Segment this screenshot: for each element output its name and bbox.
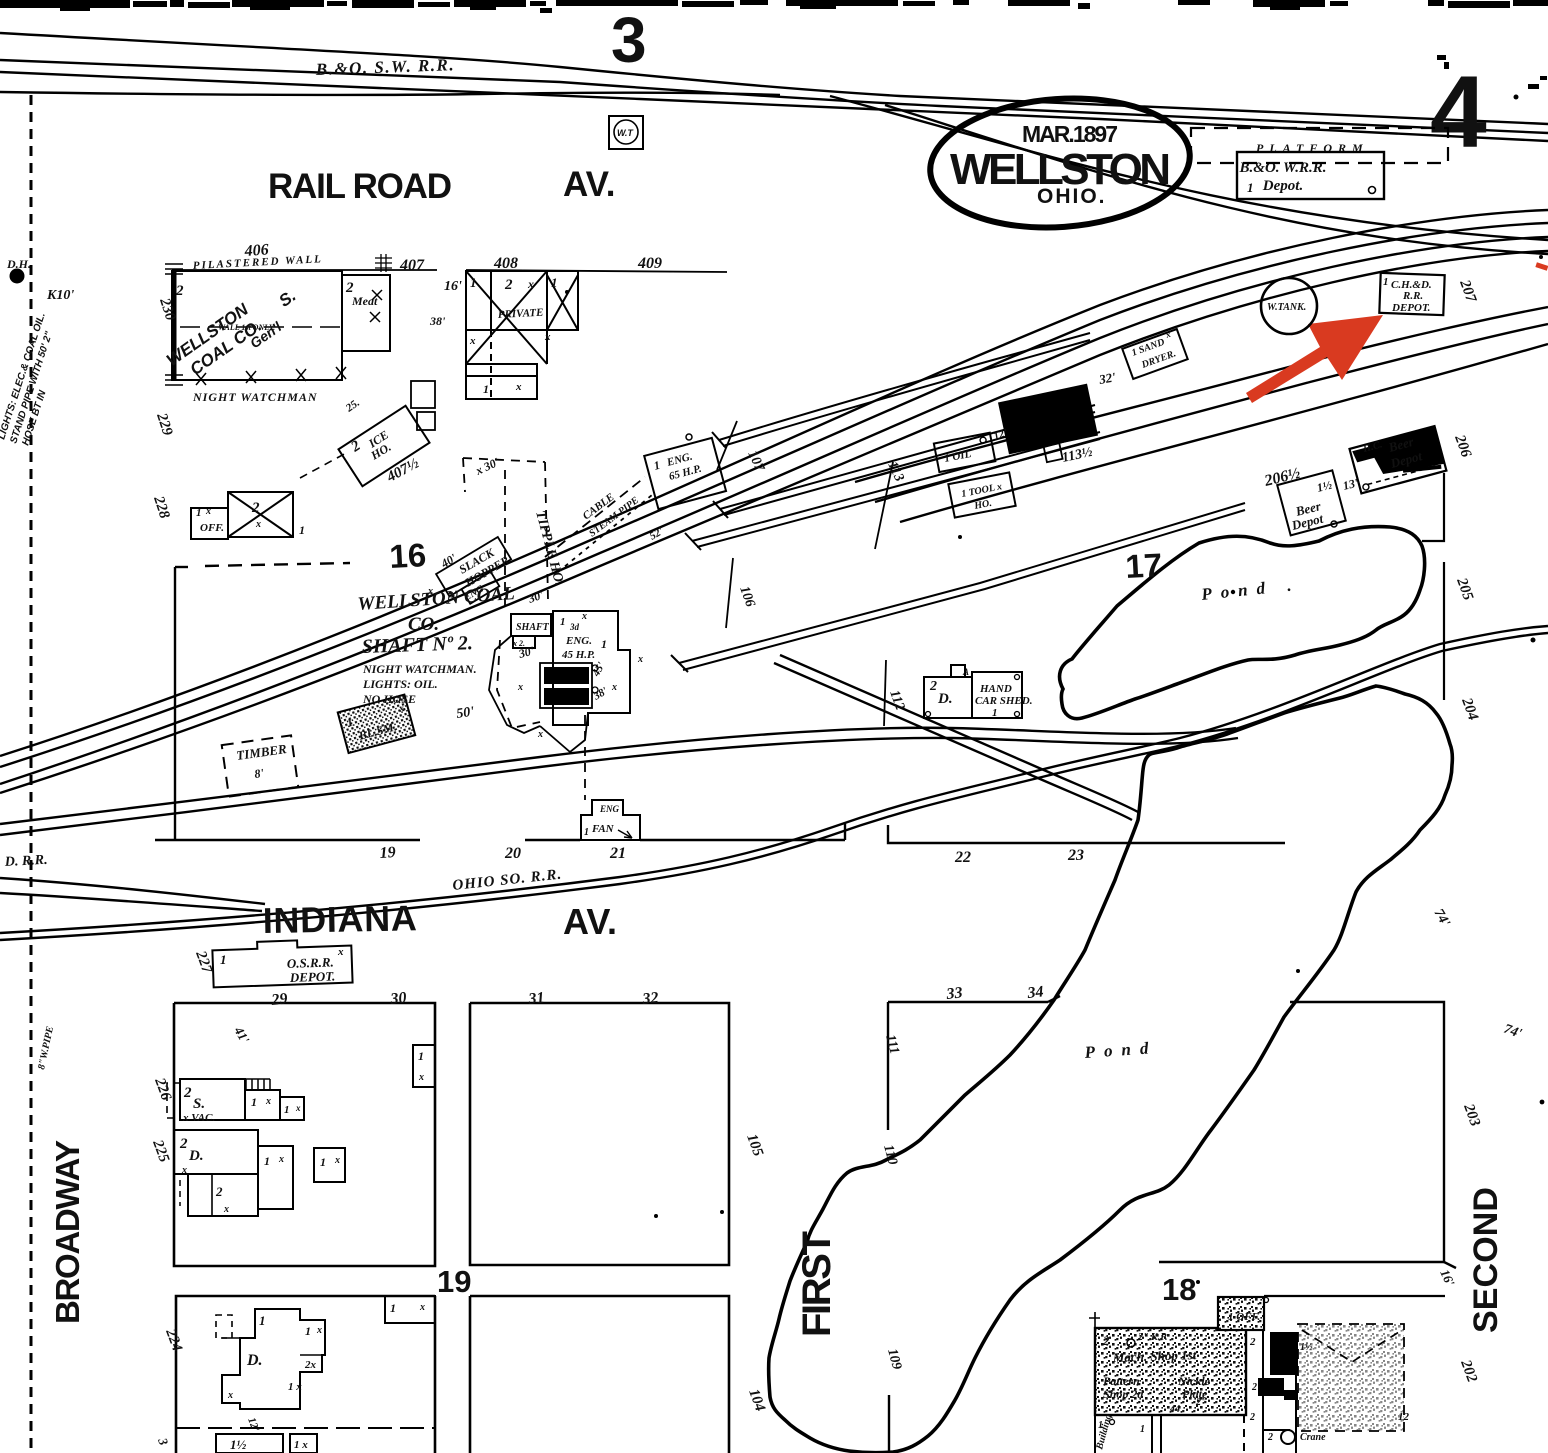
svg-text:50': 50' [455, 705, 475, 722]
svg-text:x: x [227, 1390, 233, 1401]
svg-text:Crane: Crane [1300, 1432, 1326, 1443]
svg-text:44: 44 [1169, 1404, 1180, 1415]
svg-text:S.: S. [193, 1096, 205, 1112]
svg-text:x: x [316, 1325, 322, 1336]
svg-text:RAIL ROAD: RAIL ROAD [268, 167, 454, 206]
svg-text:18: 18 [1162, 1272, 1196, 1307]
svg-text:D.: D. [246, 1352, 263, 1369]
svg-text:33: 33 [945, 984, 964, 1003]
svg-text:22: 22 [954, 849, 971, 866]
svg-text:x: x [255, 519, 261, 530]
svg-text:1½: 1½ [230, 1437, 247, 1452]
svg-text:1: 1 [584, 827, 589, 838]
svg-text:1 x: 1 x [288, 1381, 302, 1393]
svg-text:1: 1 [1140, 1424, 1145, 1435]
svg-text:INDIANA: INDIANA [262, 897, 419, 941]
svg-text:D.: D. [937, 691, 953, 707]
svg-text:1 x: 1 x [294, 1439, 308, 1451]
svg-text:Meat: Meat [351, 294, 378, 308]
svg-text:AV.: AV. [563, 901, 617, 942]
svg-text:x: x [265, 1096, 271, 1107]
svg-text:4: 4 [1430, 55, 1487, 169]
svg-text:Pattern: Pattern [1103, 1374, 1140, 1388]
svg-text:PRIVATE: PRIVATE [498, 307, 544, 321]
svg-text:W.T: W.T [617, 128, 634, 138]
svg-text:Mach. Shop 1st: Mach. Shop 1st [1112, 1347, 1197, 1365]
svg-text:CO.: CO. [408, 614, 439, 635]
svg-text:x 2.: x 2. [512, 639, 525, 648]
svg-text:x: x [418, 1072, 424, 1083]
svg-text:CAR SHED.: CAR SHED. [975, 695, 1032, 707]
svg-text:x: x [515, 381, 522, 393]
svg-text:W.TANK.: W.TANK. [1267, 302, 1306, 313]
svg-text:2x: 2x [304, 1359, 317, 1371]
svg-text:x: x [517, 682, 523, 693]
svg-text:1: 1 [264, 1154, 270, 1168]
svg-text:Depot.: Depot. [1262, 178, 1303, 194]
svg-text:29: 29 [270, 990, 289, 1009]
svg-text:19: 19 [379, 844, 396, 862]
svg-text:20: 20 [504, 845, 521, 862]
svg-text:1: 1 [220, 952, 227, 967]
svg-text:2: 2 [183, 1085, 192, 1101]
svg-text:31: 31 [527, 989, 546, 1008]
svg-text:3: 3 [611, 4, 647, 76]
svg-text:1 OFF.: 1 OFF. [1228, 1311, 1260, 1323]
svg-text:2: 2 [1249, 1336, 1256, 1348]
svg-text:x: x [278, 1154, 284, 1165]
svg-text:x: x [544, 331, 551, 343]
svg-text:ENG: ENG [599, 804, 620, 814]
svg-text:BROADWAY: BROADWAY [49, 1138, 86, 1324]
svg-text:2: 2 [179, 1136, 188, 1152]
svg-text:2: 2 [1267, 1432, 1273, 1443]
svg-text:1: 1 [305, 1324, 311, 1338]
svg-text:NIGHT WATCHMAN: NIGHT WATCHMAN [192, 390, 318, 404]
svg-text:x: x [469, 335, 476, 347]
svg-text:2: 2 [1249, 1412, 1255, 1423]
svg-text:x: x [637, 654, 643, 665]
svg-text:409: 409 [637, 255, 662, 272]
svg-text:1: 1 [601, 637, 607, 651]
svg-text:HAND: HAND [979, 683, 1012, 695]
svg-text:SHAFT Nº 2.: SHAFT Nº 2. [361, 632, 473, 658]
svg-text:21: 21 [609, 845, 626, 862]
svg-text:1: 1 [992, 707, 998, 719]
svg-text:D. R.R.: D. R.R. [3, 853, 48, 870]
svg-text:OHIO.: OHIO. [1037, 185, 1107, 208]
svg-text:x: x [295, 1103, 301, 1113]
svg-text:407: 407 [399, 257, 425, 274]
svg-text:30: 30 [389, 989, 408, 1008]
svg-text:2: 2 [1102, 1333, 1110, 1348]
svg-text:408: 408 [493, 255, 518, 272]
svg-text:AV.: AV. [563, 165, 616, 204]
svg-text:x: x [581, 611, 587, 622]
svg-text:DEPOT.: DEPOT. [289, 968, 336, 985]
svg-text:2: 2 [1251, 1382, 1257, 1393]
svg-text:32': 32' [1097, 369, 1117, 387]
svg-text:Shop 2d: Shop 2d [1103, 1387, 1144, 1401]
svg-text:MAR.1897: MAR.1897 [1022, 121, 1118, 147]
svg-text:1: 1 [196, 507, 202, 519]
svg-text:38': 38' [429, 314, 446, 328]
svg-text:2: 2 [504, 277, 513, 293]
svg-text:x: x [537, 729, 543, 740]
svg-text:OFF.: OFF. [200, 522, 224, 534]
svg-text:D.: D. [188, 1148, 204, 1164]
svg-text:FAN: FAN [591, 823, 615, 835]
svg-text:1: 1 [299, 523, 305, 537]
svg-text:19: 19 [437, 1264, 471, 1299]
svg-text:16': 16' [444, 279, 462, 294]
svg-text:DEPOT.: DEPOT. [1391, 302, 1430, 314]
svg-text:45 H.P.: 45 H.P. [561, 649, 595, 661]
svg-text:2: 2 [215, 1184, 223, 1199]
svg-text:D.H.: D.H. [6, 257, 31, 271]
svg-text:LIGHTS: OIL.: LIGHTS: OIL. [362, 677, 438, 691]
svg-text:2" K.P.: 2" K.P. [1137, 1332, 1168, 1343]
svg-text:16: 16 [388, 536, 427, 575]
svg-text:x: x [419, 1302, 425, 1313]
svg-text:1: 1 [1247, 180, 1254, 195]
svg-text:1: 1 [1383, 276, 1389, 288]
svg-text:x VAC.: x VAC. [182, 1112, 215, 1124]
svg-text:x: x [181, 1165, 187, 1176]
svg-text:x: x [527, 277, 534, 291]
svg-text:12: 12 [1398, 1411, 1410, 1423]
svg-text:1: 1 [251, 1095, 257, 1109]
svg-text:1: 1 [320, 1155, 326, 1169]
svg-text:32: 32 [641, 989, 660, 1008]
svg-text:x: x [337, 946, 344, 958]
svg-text:x: x [334, 1155, 340, 1166]
svg-text:2: 2 [929, 679, 937, 694]
svg-text:1: 1 [418, 1049, 424, 1063]
svg-text:1: 1 [483, 382, 489, 396]
svg-text:x: x [205, 506, 211, 517]
svg-text:1: 1 [551, 275, 558, 290]
svg-text:2: 2 [251, 500, 260, 516]
svg-text:2: 2 [175, 283, 184, 299]
svg-text:1: 1 [1098, 1420, 1103, 1431]
svg-text:K10': K10' [46, 288, 74, 303]
svg-text:23: 23 [1067, 847, 1084, 864]
svg-text:A: A [962, 667, 969, 677]
svg-text:NO HOSE: NO HOSE [362, 692, 416, 706]
svg-text:1: 1 [284, 1104, 290, 1116]
svg-text:34: 34 [1026, 983, 1045, 1002]
svg-text:1: 1 [390, 1301, 396, 1315]
svg-text:SHAFT: SHAFT [516, 622, 550, 633]
svg-text:2": 2" [1195, 1397, 1207, 1408]
svg-text:NIGHT WATCHMAN.: NIGHT WATCHMAN. [362, 662, 477, 676]
svg-text:17: 17 [1124, 546, 1163, 585]
svg-text:WALL 1st ONLY.: WALL 1st ONLY. [218, 323, 275, 332]
svg-text:R.R.: R.R. [1402, 290, 1423, 302]
svg-text:SECOND: SECOND [1467, 1185, 1505, 1333]
svg-text:1: 1 [259, 1313, 266, 1328]
svg-text:3d: 3d [569, 622, 580, 632]
svg-text:1: 1 [470, 275, 477, 290]
svg-text:FIRST: FIRST [795, 1229, 839, 1337]
svg-text:Nickle: Nickle [1177, 1374, 1211, 1388]
svg-text:x: x [611, 682, 617, 693]
svg-text:ENG.: ENG. [565, 635, 592, 647]
svg-text:1: 1 [560, 616, 566, 628]
svg-text:x: x [223, 1204, 229, 1215]
svg-text:1½: 1½ [1300, 1342, 1313, 1353]
